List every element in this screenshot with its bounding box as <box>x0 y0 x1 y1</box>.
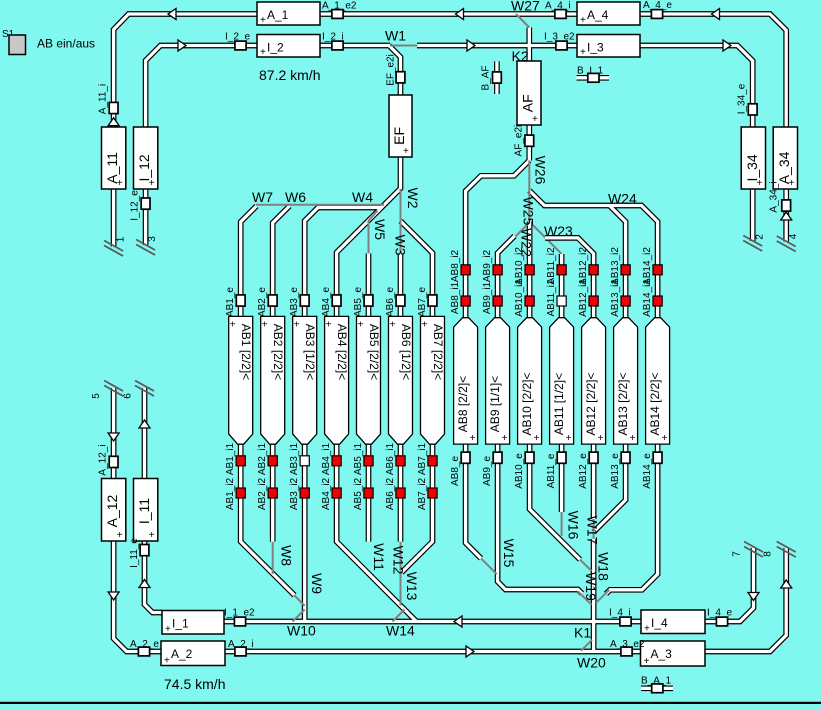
svg-text:A_4: A_4 <box>587 8 609 22</box>
svg-text:AF: AF <box>520 94 536 112</box>
svg-text:+: + <box>165 624 171 635</box>
svg-text:AB2_i1: AB2_i1 <box>257 442 268 475</box>
svg-text:A_1: A_1 <box>267 8 289 22</box>
svg-text:I_11: I_11 <box>136 498 152 524</box>
svg-text:+: + <box>117 178 123 189</box>
svg-text:I_34_e: I_34_e <box>737 83 748 114</box>
svg-text:6: 6 <box>123 393 134 399</box>
svg-text:W4: W4 <box>352 189 373 205</box>
svg-text:W11: W11 <box>371 543 387 571</box>
svg-text:AB3_i2: AB3_i2 <box>289 477 300 510</box>
svg-text:W2: W2 <box>405 188 421 209</box>
svg-text:W15: W15 <box>501 539 517 568</box>
svg-text:+: + <box>502 433 508 444</box>
svg-text:AB6_e: AB6_e <box>385 287 396 317</box>
svg-text:EF_e2i: EF_e2i <box>386 54 397 86</box>
svg-text:AB3_e: AB3_e <box>289 287 300 317</box>
svg-text:AB5_e: AB5_e <box>353 287 364 317</box>
svg-text:+: + <box>534 433 540 444</box>
svg-text:AB ein/aus: AB ein/aus <box>37 37 95 51</box>
svg-text:+: + <box>470 433 476 444</box>
svg-text:AB12 [2/2]<: AB12 [2/2]< <box>584 372 598 435</box>
svg-text:AB2_i2: AB2_i2 <box>257 477 268 510</box>
svg-text:AB13_i1: AB13_i1 <box>610 279 621 317</box>
svg-text:5: 5 <box>91 393 102 399</box>
svg-text:EF: EF <box>391 127 407 145</box>
svg-text:AB9 [1/1]<: AB9 [1/1]< <box>488 376 502 432</box>
svg-text:AB5_i2: AB5_i2 <box>353 477 364 510</box>
svg-text:+: + <box>580 15 586 26</box>
svg-text:+: + <box>532 114 538 125</box>
svg-text:K1: K1 <box>574 625 591 641</box>
svg-text:I_3: I_3 <box>587 41 604 55</box>
svg-text:AB3_i1: AB3_i1 <box>289 442 300 475</box>
svg-text:+: + <box>260 15 266 26</box>
svg-text:74.5 km/h: 74.5 km/h <box>164 676 225 692</box>
svg-text:AB4_e: AB4_e <box>321 287 332 317</box>
svg-text:W3: W3 <box>393 235 409 256</box>
svg-text:AB7_i2: AB7_i2 <box>417 477 428 510</box>
svg-text:W24: W24 <box>608 191 637 207</box>
svg-text:W8: W8 <box>279 545 295 566</box>
svg-text:AB2_e: AB2_e <box>257 287 268 317</box>
svg-text:W13: W13 <box>404 572 420 601</box>
svg-text:+: + <box>757 178 763 189</box>
svg-text:A_34_i: A_34_i <box>769 181 780 212</box>
svg-text:+: + <box>262 319 268 330</box>
svg-text:AB1_i2: AB1_i2 <box>225 477 236 510</box>
svg-text:AB11 [1/2]<: AB11 [1/2]< <box>552 373 566 435</box>
svg-text:AB14_i1: AB14_i1 <box>642 279 653 317</box>
svg-text:AB9_i1: AB9_i1 <box>482 281 493 314</box>
svg-text:AB9_e: AB9_e <box>482 456 493 486</box>
svg-text:W14: W14 <box>386 623 415 639</box>
svg-text:W26: W26 <box>533 156 549 185</box>
svg-text:+: + <box>566 433 572 444</box>
svg-text:AB4_i2: AB4_i2 <box>321 477 332 510</box>
svg-text:AB14 [2/2]<: AB14 [2/2]< <box>648 372 662 435</box>
svg-text:+: + <box>164 656 170 667</box>
svg-text:+: + <box>294 319 300 330</box>
svg-text:AB9_i2: AB9_i2 <box>482 249 493 282</box>
svg-text:+: + <box>230 319 236 330</box>
svg-text:+: + <box>580 47 586 58</box>
svg-text:+: + <box>390 319 396 330</box>
svg-text:8: 8 <box>763 551 774 557</box>
svg-text:W16: W16 <box>566 511 582 540</box>
svg-text:3: 3 <box>147 236 158 242</box>
svg-text:+: + <box>403 146 409 157</box>
svg-text:AB12_i1: AB12_i1 <box>578 279 589 317</box>
svg-text:AB8_i2: AB8_i2 <box>450 249 461 282</box>
svg-text:+: + <box>326 319 332 330</box>
svg-text:+: + <box>598 433 604 444</box>
svg-text:AB5_i1: AB5_i1 <box>353 442 364 475</box>
svg-text:AB4 [2/2]<: AB4 [2/2]< <box>335 324 349 380</box>
svg-text:AB4_i1: AB4_i1 <box>321 442 332 475</box>
svg-text:AB10 [2/2]<: AB10 [2/2]< <box>520 372 534 435</box>
svg-text:AB5 [2/2]<: AB5 [2/2]< <box>367 324 381 380</box>
svg-text:AB8_e: AB8_e <box>450 456 461 486</box>
svg-text:W9: W9 <box>309 573 325 594</box>
svg-text:AB11_e: AB11_e <box>546 453 557 488</box>
svg-text:A_11_i: A_11_i <box>98 84 109 114</box>
svg-text:87.2 km/h: 87.2 km/h <box>259 67 320 83</box>
svg-text:AB1 [2/2]<: AB1 [2/2]< <box>239 324 253 380</box>
svg-text:W17: W17 <box>585 516 601 545</box>
svg-text:I_4: I_4 <box>651 616 668 630</box>
svg-text:W27: W27 <box>511 0 540 14</box>
svg-text:AB8 [2/2]<: AB8 [2/2]< <box>456 376 470 432</box>
svg-text:+: + <box>358 319 364 330</box>
svg-text:AB11_i1: AB11_i1 <box>546 279 557 317</box>
svg-text:+: + <box>662 433 668 444</box>
svg-text:AF_e2i: AF_e2i <box>514 125 525 157</box>
svg-text:2: 2 <box>755 234 766 240</box>
svg-text:AB1_i1: AB1_i1 <box>225 442 236 475</box>
svg-text:AB6_i2: AB6_i2 <box>385 477 396 510</box>
svg-text:+: + <box>789 178 795 189</box>
svg-text:B_AF: B_AF <box>481 65 492 90</box>
svg-text:7: 7 <box>732 551 743 557</box>
svg-text:+: + <box>260 47 266 58</box>
svg-text:I_2: I_2 <box>267 41 284 55</box>
svg-text:+: + <box>117 530 123 541</box>
svg-text:AB7_e: AB7_e <box>417 287 428 317</box>
svg-text:AB13 [2/2]<: AB13 [2/2]< <box>616 372 630 435</box>
svg-text:1: 1 <box>116 236 127 242</box>
svg-text:+: + <box>630 433 636 444</box>
svg-text:AB3 [1/2]<: AB3 [1/2]< <box>303 324 317 380</box>
svg-text:AB14_e: AB14_e <box>642 453 653 489</box>
svg-text:AB11_i2: AB11_i2 <box>546 247 557 285</box>
svg-text:W23: W23 <box>544 223 573 239</box>
svg-text:W1: W1 <box>385 28 406 44</box>
svg-text:AB6 [1/2]<: AB6 [1/2]< <box>399 324 413 380</box>
svg-text:AB12_e: AB12_e <box>578 453 589 489</box>
svg-text:AB7_i1: AB7_i1 <box>417 442 428 475</box>
svg-text:AB2 [2/2]<: AB2 [2/2]< <box>271 324 285 380</box>
svg-text:AB13_e: AB13_e <box>610 453 621 489</box>
svg-text:W19: W19 <box>583 572 599 601</box>
svg-text:K2: K2 <box>512 48 529 64</box>
svg-text:A_3: A_3 <box>651 647 673 661</box>
svg-text:+: + <box>422 319 428 330</box>
svg-text:AB6_i1: AB6_i1 <box>385 442 396 475</box>
svg-text:W6: W6 <box>285 189 306 205</box>
svg-text:AB8_i1: AB8_i1 <box>450 281 461 314</box>
svg-text:W22: W22 <box>519 228 535 257</box>
svg-text:4: 4 <box>788 233 799 239</box>
svg-text:AB10_i1: AB10_i1 <box>514 279 525 317</box>
svg-text:W10: W10 <box>287 623 316 639</box>
svg-text:W12: W12 <box>391 546 407 575</box>
svg-text:W25: W25 <box>521 197 537 226</box>
svg-text:I_11_e: I_11_e <box>129 538 140 568</box>
svg-text:AB10_e: AB10_e <box>514 453 525 489</box>
svg-text:W5: W5 <box>372 219 388 240</box>
svg-text:W20: W20 <box>577 655 606 671</box>
svg-text:A_2: A_2 <box>171 647 193 661</box>
svg-text:+: + <box>149 178 155 189</box>
svg-text:A_12: A_12 <box>104 494 120 527</box>
svg-text:+: + <box>644 656 650 667</box>
svg-text:+: + <box>644 624 650 635</box>
svg-text:W7: W7 <box>252 189 273 205</box>
svg-text:A_12_i: A_12_i <box>98 444 109 475</box>
svg-text:AB1_e: AB1_e <box>225 287 236 317</box>
svg-text:I_1: I_1 <box>172 617 189 631</box>
svg-text:I_12_e: I_12_e <box>130 190 141 221</box>
svg-text:AB7 [2/2]<: AB7 [2/2]< <box>431 324 445 380</box>
svg-text:+: + <box>149 530 155 541</box>
